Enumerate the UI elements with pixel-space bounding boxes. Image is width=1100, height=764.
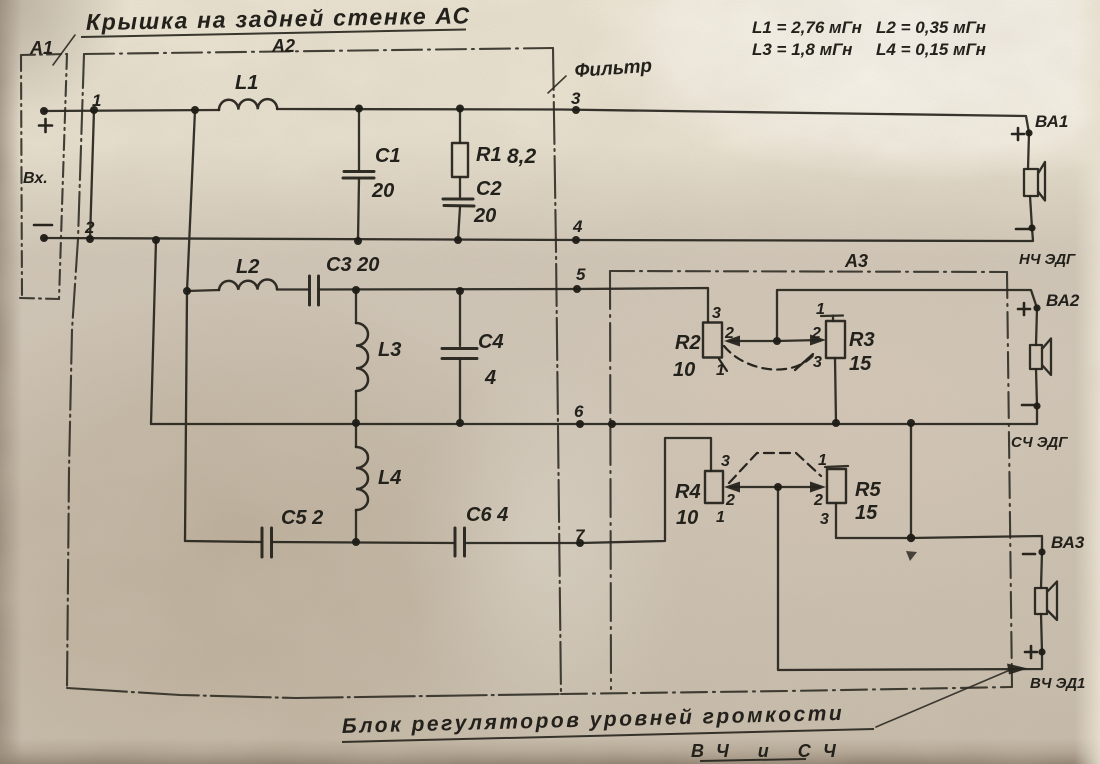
svg-text:20: 20	[371, 180, 394, 202]
svg-text:10: 10	[673, 359, 695, 381]
svg-text:3: 3	[820, 511, 829, 528]
svg-text:C2: C2	[476, 178, 502, 200]
svg-text:4: 4	[484, 367, 496, 389]
svg-text:C1: C1	[375, 145, 401, 167]
svg-text:L4: L4	[378, 467, 401, 489]
svg-text:2: 2	[724, 325, 734, 342]
svg-text:C5 2: C5 2	[281, 507, 323, 529]
svg-text:R1: R1	[476, 144, 502, 166]
svg-text:А1: А1	[29, 38, 53, 58]
svg-text:2: 2	[84, 218, 95, 237]
svg-text:3: 3	[813, 354, 822, 371]
svg-text:7: 7	[575, 526, 586, 545]
svg-text:5: 5	[576, 265, 586, 284]
svg-text:15: 15	[855, 502, 878, 524]
svg-text:L1: L1	[235, 72, 258, 94]
svg-text:3: 3	[571, 89, 581, 108]
svg-text:2: 2	[725, 492, 735, 509]
svg-text:ВЧ ЭД1: ВЧ ЭД1	[1030, 675, 1085, 692]
svg-text:R4: R4	[675, 481, 701, 503]
svg-text:R3: R3	[849, 329, 875, 351]
svg-text:C3 20: C3 20	[326, 254, 379, 276]
svg-text:1: 1	[716, 362, 725, 379]
svg-text:C4: C4	[478, 331, 504, 353]
svg-text:4: 4	[572, 217, 583, 236]
svg-text:10: 10	[676, 507, 698, 529]
svg-text:L3: L3	[378, 339, 401, 361]
svg-text:СЧ ЭДГ: СЧ ЭДГ	[1011, 434, 1068, 451]
svg-text:ВА3: ВА3	[1051, 533, 1085, 552]
svg-text:C6 4: C6 4	[466, 504, 508, 526]
svg-text:А2: А2	[271, 36, 295, 56]
svg-text:20: 20	[473, 205, 496, 227]
svg-text:ВЧ и СЧ: ВЧ и СЧ	[691, 741, 848, 761]
svg-text:1: 1	[716, 509, 725, 526]
svg-text:НЧ ЭДГ: НЧ ЭДГ	[1019, 251, 1076, 268]
svg-text:1: 1	[816, 301, 825, 318]
svg-text:2: 2	[813, 492, 823, 509]
svg-text:3: 3	[712, 305, 721, 322]
svg-text:ВА2: ВА2	[1046, 291, 1080, 310]
svg-text:6: 6	[574, 402, 584, 421]
svg-text:А3: А3	[844, 251, 868, 271]
svg-text:3: 3	[721, 453, 730, 470]
svg-text:15: 15	[849, 353, 872, 375]
svg-text:L1 = 2,76 мГн L2 = 0,35 мГн: L1 = 2,76 мГн L2 = 0,35 мГн	[752, 18, 986, 37]
svg-text:R2: R2	[675, 332, 701, 354]
svg-text:L3 = 1,8 мГн L4 = 0,15 мГн: L3 = 1,8 мГн L4 = 0,15 мГн	[752, 40, 986, 59]
svg-text:L2: L2	[236, 256, 259, 278]
svg-text:Вх.: Вх.	[23, 170, 48, 187]
svg-text:8,2: 8,2	[507, 145, 537, 168]
svg-text:2: 2	[811, 325, 821, 342]
svg-text:1: 1	[92, 91, 101, 110]
svg-text:ВА1: ВА1	[1035, 112, 1068, 131]
svg-text:R5: R5	[855, 479, 881, 501]
svg-text:1: 1	[818, 452, 827, 469]
